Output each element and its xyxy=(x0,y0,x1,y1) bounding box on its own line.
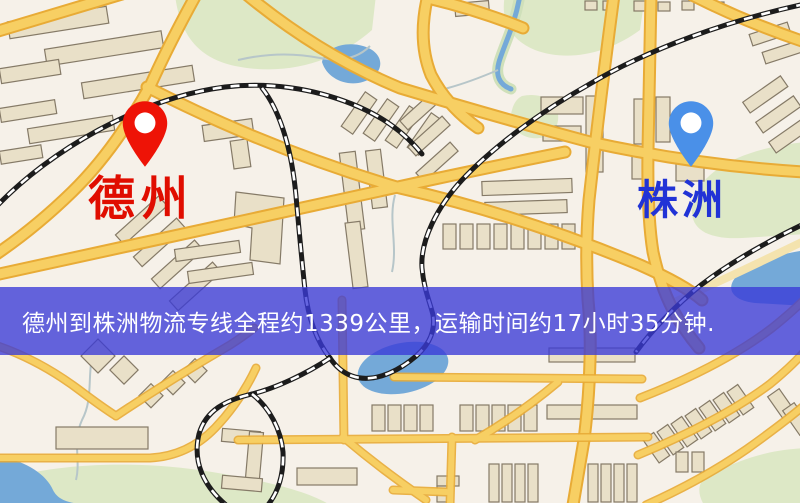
map-canvas: 德州 株洲 德州到株洲物流专线全程约1339公里，运输时间约17小时35分钟. xyxy=(0,0,800,503)
origin-marker-label: 德州 xyxy=(88,176,194,223)
destination-pin-icon xyxy=(664,100,718,168)
origin-marker[interactable] xyxy=(118,100,172,168)
map-background xyxy=(0,0,800,503)
destination-marker[interactable] xyxy=(664,100,718,168)
route-info-text: 德州到株洲物流专线全程约1339公里，运输时间约17小时35分钟. xyxy=(22,304,715,338)
origin-pin-icon xyxy=(118,100,172,168)
route-info-banner: 德州到株洲物流专线全程约1339公里，运输时间约17小时35分钟. xyxy=(0,287,800,355)
destination-marker-label: 株洲 xyxy=(637,180,727,221)
